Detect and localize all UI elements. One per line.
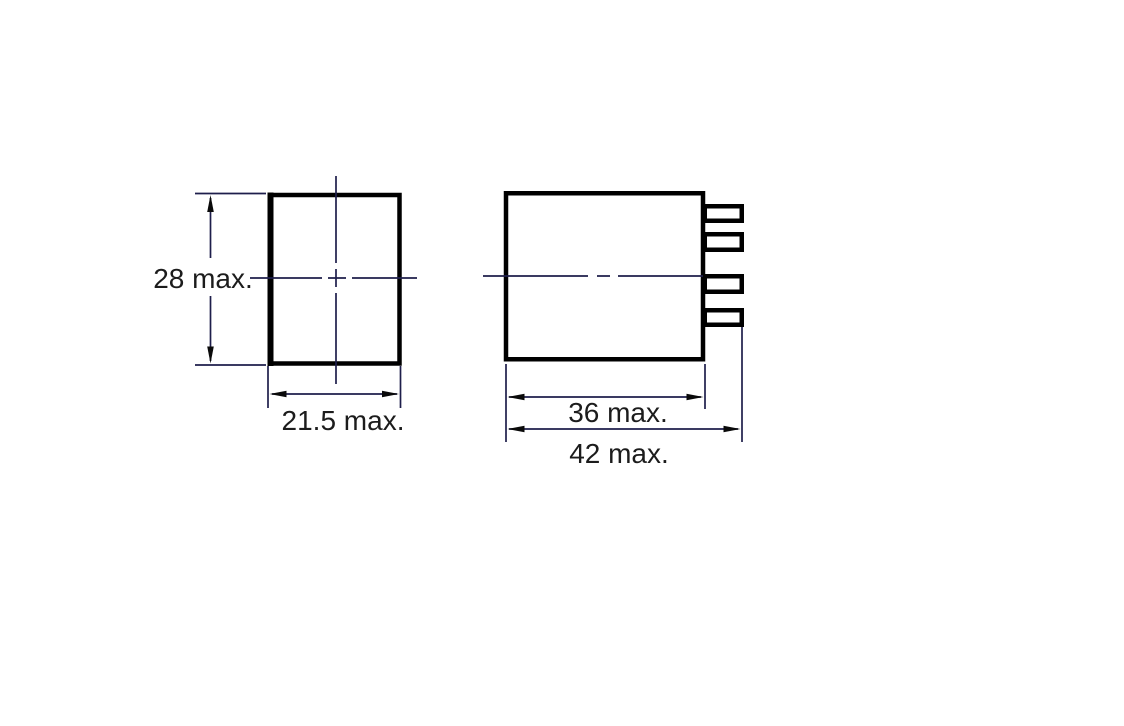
side-body-width-label: 36 max. xyxy=(568,397,668,428)
arrowhead-left-icon xyxy=(270,391,287,398)
pin-group xyxy=(705,206,742,325)
side-view: 36 max. 42 max. xyxy=(483,193,742,469)
pin-1 xyxy=(705,206,742,221)
arrowhead-right-icon xyxy=(724,426,741,433)
dimension-drawing: 28 max. 21.5 max. 36 max. xyxy=(0,0,1124,726)
front-height-label: 28 max. xyxy=(153,263,253,294)
arrowhead-up-icon xyxy=(207,195,214,212)
arrowhead-left-icon xyxy=(508,394,525,401)
arrowhead-left-icon xyxy=(508,426,525,433)
front-view: 28 max. 21.5 max. xyxy=(153,176,417,436)
arrowhead-right-icon xyxy=(382,391,399,398)
front-body-outline xyxy=(271,195,400,364)
drawing-canvas: 28 max. 21.5 max. 36 max. xyxy=(0,0,1124,726)
pin-3 xyxy=(705,276,742,292)
pin-4 xyxy=(705,310,742,325)
side-overall-width-label: 42 max. xyxy=(569,438,669,469)
arrowhead-right-icon xyxy=(687,394,704,401)
front-width-label: 21.5 max. xyxy=(282,405,405,436)
arrowhead-down-icon xyxy=(207,347,214,364)
pin-2 xyxy=(705,234,742,250)
